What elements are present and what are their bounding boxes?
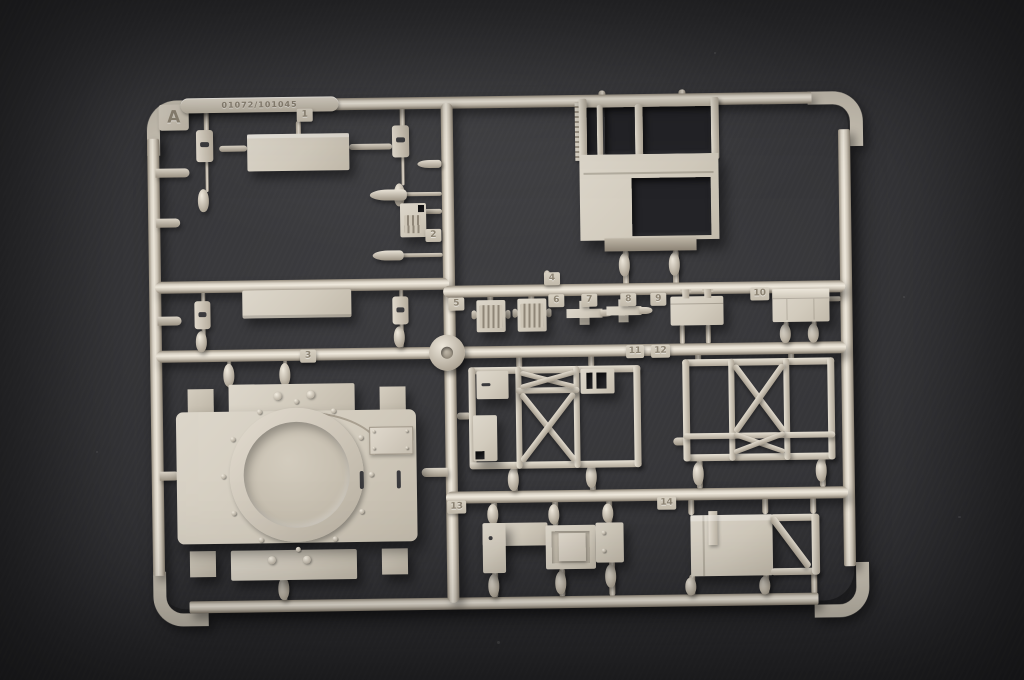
rivet xyxy=(221,474,226,479)
cab-window-opening xyxy=(587,108,598,155)
number-tab-14: 14 xyxy=(657,497,676,510)
sprue-gate-drop xyxy=(223,364,234,387)
rivet xyxy=(602,531,606,535)
rivet-dome xyxy=(274,392,282,400)
number-tab-5: 5 xyxy=(448,297,464,310)
rivet xyxy=(372,430,375,433)
part-axle-cross-bar xyxy=(606,306,641,315)
rivet-dome xyxy=(268,556,276,564)
tool-box-seam xyxy=(813,299,814,320)
window-slit xyxy=(586,373,592,389)
frame-side-box xyxy=(473,415,498,461)
sprue-gate xyxy=(424,209,442,214)
part-axle-cross-bar xyxy=(566,309,602,319)
number-tab-9: 9 xyxy=(650,293,666,306)
dust-speck xyxy=(903,296,905,298)
frame-member xyxy=(682,357,834,366)
rivet xyxy=(359,509,364,514)
tool-box-lid xyxy=(772,288,829,299)
sprue-gate xyxy=(401,253,443,258)
number-tab-8: 8 xyxy=(620,293,636,306)
number-tab-4: 4 xyxy=(544,272,560,285)
rivet-dome xyxy=(303,556,311,564)
sprue-gate-drop xyxy=(279,363,290,386)
rivet xyxy=(372,447,375,450)
platform-crease xyxy=(702,515,705,576)
rivet xyxy=(602,549,606,553)
sprue-gate xyxy=(401,155,404,185)
sprue-gate-drop xyxy=(759,576,770,594)
sprue-gate-drop xyxy=(487,504,498,524)
sprue-gate xyxy=(205,160,208,192)
part-l-bracket-panel xyxy=(482,523,506,573)
rivet xyxy=(230,437,235,442)
grille-ribs xyxy=(520,303,543,327)
part-hull-roof-plate xyxy=(173,382,422,581)
cab-door-opening xyxy=(632,177,712,236)
sprue-gate xyxy=(219,146,247,152)
sprue-nub xyxy=(158,316,182,325)
clamp-slot xyxy=(396,307,404,312)
sprue-a: A 01072/101045 xyxy=(0,0,1024,680)
sprue-gate xyxy=(680,324,685,344)
number-tab-3: 3 xyxy=(300,350,316,363)
rivet xyxy=(259,537,264,542)
grille-ear xyxy=(505,310,510,319)
sprue-gate-drop xyxy=(196,331,207,352)
stowage-box-hasp xyxy=(704,289,711,298)
sprue-frame-corner xyxy=(807,91,863,147)
window-slit xyxy=(596,373,606,389)
sprue-nub xyxy=(422,468,448,477)
frame-member xyxy=(683,431,835,439)
platform-frame-member xyxy=(811,514,820,575)
rivet xyxy=(333,536,338,541)
hatch-door xyxy=(559,533,586,561)
grille-ribs xyxy=(479,305,502,328)
sprue-gate-drop xyxy=(394,326,405,347)
rivet xyxy=(331,408,336,413)
tool-box-seam xyxy=(786,299,787,320)
sprue-gate-drop xyxy=(508,468,519,491)
part-hatch-door-box xyxy=(545,525,596,570)
frame-member xyxy=(827,357,835,459)
part-grille-plate xyxy=(400,203,426,237)
sprue-nub xyxy=(155,168,189,177)
part-stowage-box xyxy=(670,296,723,326)
part-bullet-pin xyxy=(417,160,441,168)
photo-of-model-kit-sprue: A 01072/101045 xyxy=(0,0,1024,680)
frame-member xyxy=(783,358,790,460)
stowage-box-hasp xyxy=(682,289,689,298)
grille-ear xyxy=(546,308,551,317)
part-hinged-flap xyxy=(595,522,624,562)
rivet xyxy=(405,429,408,432)
number-tab-13: 13 xyxy=(447,500,466,513)
sprue-gate-drop xyxy=(619,253,630,276)
side-box-notch xyxy=(475,451,484,459)
clamp-slot xyxy=(396,137,405,142)
cab-sill-step xyxy=(604,237,696,251)
rivet-dome xyxy=(307,391,315,399)
roof-raised-panel-bottom xyxy=(231,549,357,581)
sprue-frame-corner xyxy=(814,562,870,618)
number-tab-6: 6 xyxy=(548,294,564,307)
dust-speck xyxy=(958,516,961,518)
sprue-gate-drop xyxy=(816,458,827,481)
rivet xyxy=(369,472,374,477)
dust-speck xyxy=(96,451,98,453)
sprue-gate-drop xyxy=(555,571,566,594)
sprue-gate-drop xyxy=(278,577,289,600)
part-angled-platform xyxy=(690,514,773,576)
sprue-gate xyxy=(404,192,442,197)
sprue-gate xyxy=(706,324,711,344)
roof-corner-bracket xyxy=(382,548,408,574)
part-braced-frame-left xyxy=(468,355,642,469)
sprue-gate-drop xyxy=(693,462,704,485)
sprue-gate xyxy=(204,110,209,132)
sprue-gate-drop xyxy=(780,324,791,343)
number-tab-2: 2 xyxy=(425,229,441,242)
sprue-gate-drop xyxy=(669,252,680,275)
number-tab-11: 11 xyxy=(626,345,644,358)
sprue-gate-drop xyxy=(685,577,696,595)
rivet xyxy=(294,399,299,404)
roof-slot xyxy=(360,471,364,489)
cab-window-opening xyxy=(643,106,712,154)
sprue-nub xyxy=(156,218,180,227)
frame-door-panel xyxy=(476,371,508,399)
sprue-gate xyxy=(810,497,816,514)
sprue-gate-drop xyxy=(488,574,499,597)
rivet xyxy=(405,446,408,449)
bracket-hole xyxy=(489,536,493,540)
dust-speck xyxy=(497,641,500,644)
rivet xyxy=(231,511,236,516)
number-tab-12: 12 xyxy=(651,345,670,358)
clamp-slot xyxy=(200,142,209,147)
sprue-gate xyxy=(349,143,392,150)
part-flat-panel-top xyxy=(247,133,350,171)
frame-member xyxy=(682,359,690,461)
grille-notch xyxy=(418,205,424,212)
part-braced-frame-right xyxy=(682,357,835,461)
sprue-gate-drop xyxy=(586,465,597,488)
rivet xyxy=(296,547,301,552)
sprue-gate-drop xyxy=(605,564,616,587)
rivet xyxy=(257,409,262,414)
part-radiator-grille xyxy=(517,298,546,331)
cab-frame-right xyxy=(710,97,719,159)
frame-member xyxy=(728,359,735,461)
number-tab-1: 1 xyxy=(297,109,313,122)
frame-window-panel xyxy=(580,368,614,393)
door-handle-slot xyxy=(481,383,490,386)
panel-edge-highlight xyxy=(247,133,349,138)
cab-window-mullion xyxy=(597,105,604,157)
stowage-box-lid-line xyxy=(670,303,723,305)
mold-stamp: 01072/101045 xyxy=(180,96,338,113)
cab-window-opening xyxy=(605,107,636,154)
part-bullet-pin xyxy=(370,189,407,201)
number-tab-10: 10 xyxy=(750,287,769,300)
roof-slot xyxy=(397,470,401,488)
sprue-gate-drop xyxy=(808,324,819,343)
part-bullet-pin xyxy=(373,250,404,260)
ring-hatch-center xyxy=(441,347,453,359)
grille-ribs xyxy=(404,215,421,233)
number-tab-7: 7 xyxy=(581,294,597,307)
sprue-gate-drop xyxy=(198,189,209,212)
sprue-gate xyxy=(827,296,841,301)
dust-speck xyxy=(714,52,716,54)
sprue-gate-drop xyxy=(602,503,613,522)
clamp-slot xyxy=(198,312,206,317)
sprue-gate xyxy=(762,497,768,514)
roof-corner-bracket xyxy=(190,551,216,577)
part-radiator-grille xyxy=(476,300,505,332)
part-cab-side-panel xyxy=(575,97,723,252)
sprue-gate xyxy=(688,498,694,515)
part-tool-box xyxy=(772,288,829,322)
sprue-gate-drop xyxy=(548,504,559,524)
part-flat-panel-mid xyxy=(242,289,351,319)
frame-member xyxy=(633,365,641,467)
frame-member xyxy=(515,367,522,469)
rivet xyxy=(358,435,363,440)
platform-edge-highlight xyxy=(690,514,772,521)
